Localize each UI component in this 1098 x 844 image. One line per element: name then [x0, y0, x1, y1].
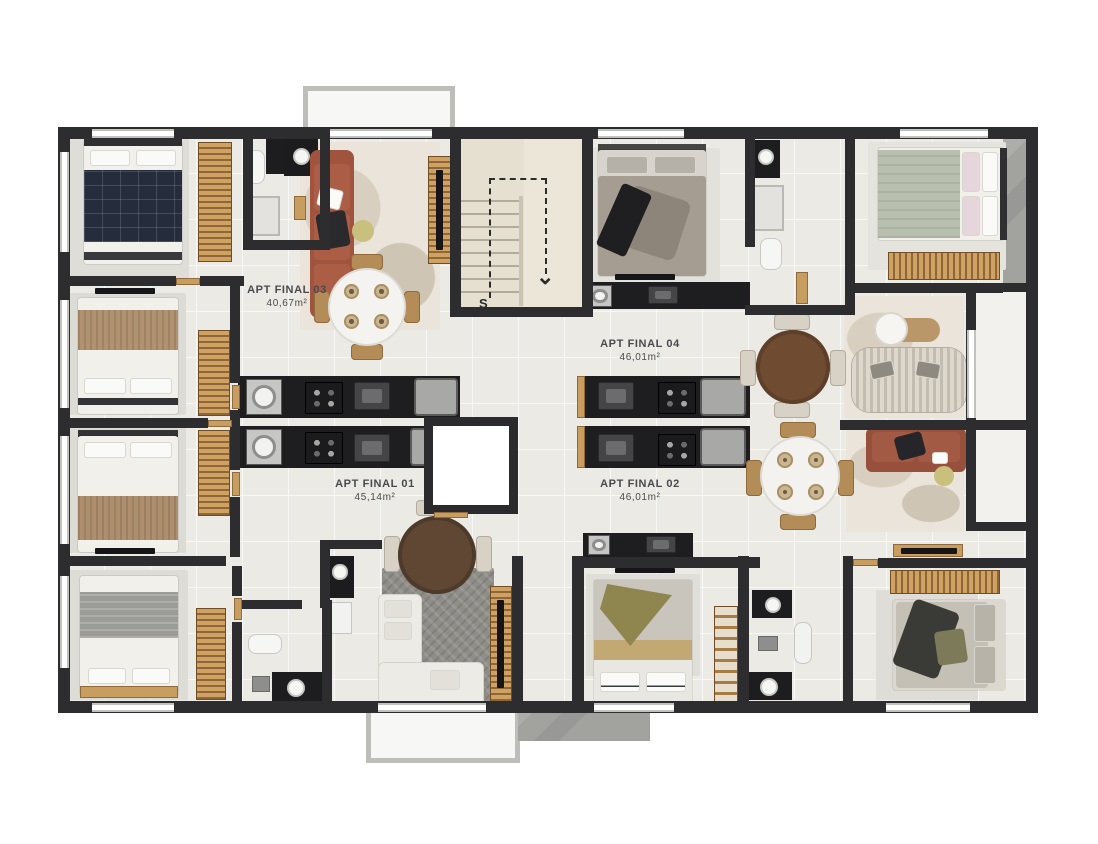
- door: [232, 472, 240, 496]
- tv: [95, 288, 155, 294]
- tv: [615, 568, 675, 573]
- wall: [58, 556, 226, 566]
- wardrobe: [198, 430, 230, 516]
- window: [92, 129, 174, 138]
- stair-tread: [461, 200, 521, 202]
- olive-patch: [934, 628, 968, 666]
- washing-machine: [246, 379, 282, 415]
- chair: [780, 422, 816, 438]
- pillow: [430, 670, 460, 690]
- pillow: [982, 196, 998, 236]
- stair-center-beam: [519, 196, 523, 306]
- bed-foot-bench: [84, 252, 182, 260]
- sage-blanket: [878, 150, 960, 238]
- tv: [497, 600, 504, 688]
- tv: [95, 548, 155, 554]
- balcony-door: [378, 703, 486, 712]
- door: [294, 196, 306, 220]
- elevator-threshold: [434, 512, 468, 518]
- wardrobe: [888, 252, 1000, 280]
- wall: [320, 540, 382, 549]
- chair: [780, 514, 816, 530]
- chair: [351, 344, 383, 360]
- stair-tread: [461, 252, 521, 254]
- sink-bowl: [757, 675, 781, 699]
- wall: [230, 497, 240, 557]
- wall: [232, 566, 242, 596]
- pillow: [932, 452, 948, 464]
- pillow: [90, 150, 130, 166]
- wall: [582, 127, 593, 317]
- sink-bowl: [762, 594, 784, 616]
- door: [208, 420, 232, 427]
- apartment-label-01: APT FINAL 01 45,14m²: [295, 478, 455, 504]
- balcony-door: [967, 330, 976, 418]
- stair-tread: [461, 265, 521, 267]
- wardrobe: [196, 608, 226, 700]
- chair: [476, 536, 492, 572]
- kitchen-sink: [598, 434, 634, 462]
- wall: [450, 307, 593, 317]
- wall: [512, 556, 523, 713]
- washing-machine: [588, 535, 610, 555]
- chair: [404, 291, 420, 323]
- ladder-shelf: [714, 606, 738, 702]
- kitchen-sink: [354, 382, 390, 410]
- plate: [808, 484, 824, 500]
- pouf: [352, 220, 374, 242]
- navy-plaid-blanket: [84, 170, 182, 242]
- pillow: [982, 152, 998, 192]
- pillow: [84, 442, 126, 458]
- wall: [322, 600, 332, 713]
- tan-blanket: [78, 496, 178, 540]
- pillow: [962, 196, 980, 236]
- chair: [838, 460, 854, 496]
- door: [234, 598, 242, 620]
- stair-path-line: [489, 178, 547, 180]
- apartment-name: APT FINAL 02: [560, 478, 720, 492]
- pillow: [136, 150, 176, 166]
- pillow: [384, 600, 412, 618]
- apartment-label-02: APT FINAL 02 46,01m²: [560, 478, 720, 504]
- pillow: [974, 604, 996, 642]
- kitchen-sink: [646, 536, 676, 553]
- sink-bowl: [330, 562, 350, 582]
- wall: [840, 420, 1038, 430]
- window: [60, 152, 69, 252]
- stove: [658, 434, 696, 466]
- shower-drain: [758, 636, 778, 651]
- stair-tread: [461, 291, 521, 293]
- stove: [305, 432, 343, 464]
- dining-table: [398, 516, 476, 594]
- door: [232, 385, 240, 409]
- stove: [305, 382, 343, 414]
- shower: [750, 185, 784, 231]
- window: [60, 436, 69, 544]
- wall: [58, 418, 208, 428]
- toilet: [760, 238, 782, 270]
- wall: [320, 127, 330, 249]
- wall: [450, 127, 461, 317]
- pillow: [130, 378, 172, 394]
- bed-headboard: [1000, 148, 1007, 240]
- pillow: [654, 156, 696, 174]
- tv: [436, 170, 443, 250]
- wall: [243, 127, 253, 249]
- shower-drain: [252, 676, 270, 692]
- pillow: [132, 668, 170, 684]
- wall: [745, 127, 755, 247]
- wall: [572, 556, 584, 713]
- plate: [374, 314, 389, 329]
- tv: [901, 548, 957, 554]
- stair-path-line: [545, 178, 547, 274]
- door: [853, 559, 878, 566]
- window: [594, 703, 674, 712]
- kitchen-wood-end: [577, 376, 585, 418]
- washing-machine: [246, 429, 282, 465]
- pouf: [934, 466, 954, 486]
- stair-down-arrow: ⌄: [536, 270, 554, 284]
- bed-foot-bench: [80, 686, 178, 698]
- pillow: [962, 152, 980, 192]
- stair-tread: [461, 213, 521, 215]
- balcony-right-floor: [976, 292, 1026, 522]
- dining-table: [756, 330, 830, 404]
- window: [92, 703, 174, 712]
- apartment-label-03: APT FINAL 03 40,67m²: [207, 284, 367, 310]
- wall: [242, 600, 302, 609]
- pillow: [384, 622, 412, 640]
- apartment-name: APT FINAL 01: [295, 478, 455, 492]
- chair: [774, 402, 810, 418]
- wall: [738, 556, 749, 713]
- bed-headboard: [78, 398, 178, 405]
- floor-plan-canvas: S ⌄: [0, 0, 1098, 844]
- window: [886, 703, 970, 712]
- pillow: [646, 672, 686, 692]
- apartment-area: 46,01m²: [560, 352, 720, 365]
- sink-bowl: [284, 676, 308, 700]
- coffee-table-tray: [876, 314, 906, 344]
- refrigerator: [414, 378, 458, 416]
- outer-wall-right: [1026, 127, 1038, 713]
- stair-path-line: [489, 178, 491, 298]
- tan-blanket: [78, 310, 178, 350]
- tv: [615, 274, 675, 280]
- wall: [320, 540, 330, 608]
- plate: [344, 314, 359, 329]
- pillow: [974, 646, 996, 684]
- wall: [745, 305, 855, 315]
- wall: [843, 556, 853, 713]
- toilet: [248, 634, 282, 654]
- kitchen-wood-end: [577, 426, 585, 468]
- stair-tread: [461, 226, 521, 228]
- stair-tread: [461, 278, 521, 280]
- pillow: [88, 668, 126, 684]
- apartment-area: 40,67m²: [207, 298, 367, 311]
- apartment-name: APT FINAL 04: [560, 338, 720, 352]
- chair: [830, 350, 846, 386]
- wall: [575, 557, 760, 568]
- dining-table: [762, 438, 838, 514]
- door: [176, 278, 200, 285]
- window: [598, 129, 684, 138]
- pillow: [606, 156, 648, 174]
- apartment-area: 45,14m²: [295, 492, 455, 505]
- stair-tread: [461, 239, 521, 241]
- wardrobe: [890, 570, 1000, 594]
- apartment-area: 46,01m²: [560, 492, 720, 505]
- balcony-top: [303, 86, 455, 133]
- wardrobe: [198, 142, 232, 262]
- pillow: [84, 378, 126, 394]
- refrigerator: [700, 428, 746, 466]
- window: [900, 129, 988, 138]
- wall: [243, 240, 330, 250]
- balcony-bottom: [366, 707, 520, 763]
- stove: [658, 382, 696, 414]
- wall: [232, 622, 242, 713]
- bed-headboard: [84, 139, 182, 146]
- plate: [777, 452, 793, 468]
- chair: [774, 314, 810, 330]
- kitchen-sink: [648, 286, 678, 304]
- plate: [808, 452, 824, 468]
- window: [60, 300, 69, 408]
- toilet: [794, 622, 812, 664]
- wall: [58, 276, 176, 286]
- kitchen-sink: [598, 382, 634, 410]
- khaki-band: [594, 640, 692, 660]
- apartment-label-04: APT FINAL 04 46,01m²: [560, 338, 720, 364]
- gray-striped-blanket: [80, 592, 178, 638]
- outer-wall-top: [58, 127, 1038, 139]
- sink-bowl: [755, 146, 777, 168]
- balcony-door: [330, 129, 432, 138]
- wall: [230, 410, 240, 470]
- plate: [777, 484, 793, 500]
- wardrobe: [198, 330, 230, 416]
- sofa: [852, 348, 966, 412]
- apartment-name: APT FINAL 03: [207, 284, 367, 298]
- window: [60, 576, 69, 668]
- chair: [351, 254, 383, 270]
- chair: [746, 460, 762, 496]
- chair: [740, 350, 756, 386]
- pillow: [600, 672, 640, 692]
- pillow: [130, 442, 172, 458]
- kitchen-sink: [354, 434, 390, 462]
- wall: [878, 558, 1038, 568]
- refrigerator: [700, 378, 746, 416]
- plate: [374, 284, 389, 299]
- door: [796, 272, 808, 304]
